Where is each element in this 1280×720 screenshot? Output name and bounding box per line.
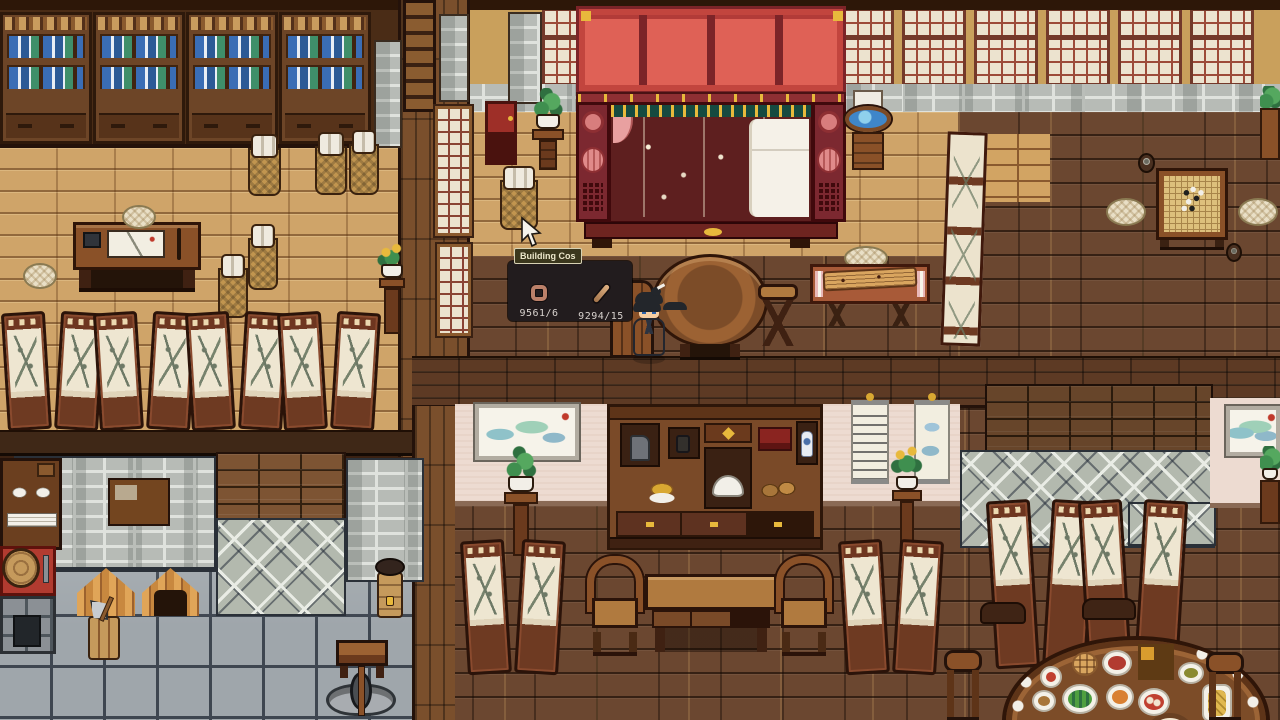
block-body [88,616,120,660]
stand-column [1260,480,1280,524]
stool-top [1206,652,1244,674]
side-table-plant[interactable] [1258,86,1280,162]
folding-screen-panel[interactable] [514,539,566,675]
stool-top [758,284,798,300]
stand-top [504,492,538,504]
horseshoe-armchair[interactable] [774,556,834,656]
calligraphy-scroll [107,230,165,258]
book-row [286,34,364,58]
floor-cushion[interactable] [122,205,156,229]
cabinet-cell [668,427,700,459]
folding-screen-panel[interactable] [330,311,381,431]
red-cabinet[interactable] [485,101,517,165]
folding-screen-row[interactable] [8,312,374,430]
lantern [581,147,605,173]
character-body [633,318,665,356]
column-lattice [819,183,839,213]
tooltip-title: Building Cos [514,248,582,264]
desk-legs [79,270,195,292]
side-table [1260,108,1280,160]
table-top [645,574,777,610]
lattice-door [435,106,472,236]
go-stones [1164,176,1220,232]
dining-chair-back[interactable] [1082,598,1136,620]
kitchen-entry-tiles [216,518,346,616]
grinder[interactable] [374,558,406,624]
stool-legs [1209,672,1241,720]
washbasin-stand[interactable] [841,90,895,172]
gold-corners [581,11,591,21]
guqin [823,267,918,292]
book-row [7,65,85,89]
book-row [7,34,85,58]
column-lattice [583,183,603,213]
bowls [7,483,57,499]
resource-stone: 9561/6 [510,285,568,322]
red-box [758,427,792,451]
resource-row: 9561/6 9294/15 [508,285,632,322]
cabinet-base [610,537,820,548]
checker-end [917,271,925,297]
lattice-window [1046,8,1110,86]
blanket [749,119,809,217]
gold-handle [704,228,722,236]
plant-stand[interactable] [528,88,568,170]
stand-top [379,278,405,288]
plant [1260,446,1280,470]
book-row [100,34,178,58]
book-row [193,65,271,89]
folding-screen-panel[interactable] [185,311,236,431]
canopy-bed[interactable] [576,6,846,250]
wheel-axle [358,666,365,716]
round-table[interactable] [652,254,768,364]
folding-stool[interactable] [758,284,798,352]
game-viewport: 9561/6 9294/15 Building Cos [0,0,1280,720]
cabinet-cell [620,423,660,467]
stool-legs [947,670,979,720]
flower-medallion [818,111,840,133]
bed-column [576,102,610,222]
folding-screen-pair[interactable] [846,540,936,674]
kitchen-window [110,480,168,524]
character-eyes [642,308,646,314]
floor-cushion[interactable] [23,263,57,289]
tooltip-panel: 9561/6 9294/15 [508,261,632,321]
table-apron [652,610,770,628]
stone-pot[interactable] [1138,153,1155,173]
scholar-rock [630,435,650,461]
stool-top [944,650,982,672]
dark-jar [676,435,690,453]
brick-column [374,40,402,148]
stone-pot[interactable] [1226,243,1242,262]
wood-stick-icon [592,284,609,303]
corridor-brick-wall [985,384,1213,456]
resource-value: 9294/15 [578,311,624,322]
folding-screen-panel[interactable] [277,311,328,431]
stand-column [384,288,400,334]
folding-screen-panel[interactable] [460,539,512,675]
plant-pot [536,114,560,129]
lattice-window [1118,8,1182,86]
bed-feet [592,239,612,248]
kitchen-wood-wall [216,452,346,520]
table-top [652,254,768,348]
guqin-table[interactable] [810,246,930,328]
knob [508,116,513,121]
horseshoe-armchair[interactable] [585,556,645,656]
plate-stack [7,513,57,527]
cabinet-crest [704,423,752,443]
bed-canopy [576,6,846,94]
x-leg [886,304,916,326]
player-character[interactable] [630,292,668,366]
cabinet-top [610,407,820,420]
folding-screen-panel[interactable] [1,311,52,431]
gold-diamond [722,427,735,440]
bread-ingots [756,473,800,505]
lattice-door [437,244,471,336]
kitchen-north-beam [0,430,424,456]
flowers [890,444,924,480]
book-row [286,65,364,89]
floor-cushion[interactable] [1106,198,1146,226]
qin-table-top [810,264,930,304]
dining-stool[interactable] [1206,652,1244,720]
bed-interior [608,102,814,224]
cabinet-drawers [616,511,814,537]
scroll-basket[interactable] [349,144,379,195]
go-board [1164,176,1220,232]
stone-block-icon [531,285,547,301]
folding-screen-panel[interactable] [838,539,890,675]
flower-pot [381,264,403,278]
stand-top [892,490,922,501]
wall-ladder [403,0,436,112]
basin-stand [852,132,884,170]
table-base [680,344,740,360]
bookshelf[interactable] [279,12,371,144]
washbasin [845,106,891,132]
flower-medallion [582,111,604,133]
x-leg [822,304,852,326]
gameroom-floor-patch [983,134,1050,202]
book-row [193,34,271,58]
display-cabinet[interactable] [607,404,823,550]
brush [177,228,181,260]
stove-base [0,596,56,654]
keyhole [386,596,394,606]
brick-column [439,14,469,102]
box [37,463,55,477]
bookshelf[interactable] [93,12,185,144]
stove-door [13,615,41,647]
mouse-cursor [519,216,543,248]
flower-stand[interactable] [886,444,928,554]
bonsai-plant [504,446,538,480]
character-hair [635,292,663,304]
dining-chair-back[interactable] [980,602,1026,624]
horn-cup [712,475,744,497]
chair-seat [781,598,827,628]
lattice-window [902,8,966,86]
bed-valance [611,105,811,117]
cabinet-cell [796,421,818,465]
chopping-block[interactable] [86,604,124,662]
long-table[interactable] [645,574,777,652]
bonsai-pot [508,476,534,492]
chair-seat [592,598,638,628]
book-row [100,65,178,89]
folding-screen-panel[interactable] [892,539,944,675]
calligraphy-scroll-hanging[interactable] [851,400,889,484]
build-tooltip: 9561/6 9294/15 Building Cos [508,248,632,322]
bed-base [584,222,838,239]
wooden-tub[interactable] [2,548,40,588]
bench-top [336,640,388,666]
lattice-window [1190,8,1254,86]
grinder-body [377,572,403,618]
flower-pot [896,476,918,490]
grinding-wheel-station[interactable] [326,672,396,718]
shelf-drawers [6,113,86,138]
table-legs [655,628,767,652]
stool-legs [760,300,796,346]
kitchen-shelf[interactable] [0,458,62,550]
gold-ingot-plate [640,477,684,505]
bookshelf[interactable] [186,12,278,144]
go-board-table[interactable] [1156,168,1228,252]
folding-screen-panel[interactable] [93,311,144,431]
ink-stone [83,232,101,248]
porcelain-vase [801,431,813,457]
resource-wood: 9294/15 [572,285,630,322]
bookshelf[interactable] [0,12,92,144]
floor-cushion[interactable] [1238,198,1278,226]
plant-pot [1262,468,1278,480]
board-frame [1156,168,1228,240]
stand-top [532,129,564,140]
wood-hollow [154,590,187,616]
plant [1260,86,1280,108]
drawer-knobs [646,522,654,527]
ladle [43,555,49,583]
scroll-basket[interactable] [248,238,278,290]
table-legs [1160,240,1224,250]
writing-desk[interactable] [73,222,201,298]
lattice-window [974,8,1038,86]
flower-stand[interactable] [1258,446,1280,526]
resource-value: 9561/6 [519,308,558,319]
grinder-wheel [375,558,405,576]
tall-folding-screen[interactable] [940,131,987,346]
lantern [817,147,841,173]
chair-legs [593,632,637,656]
folding-screen-pair[interactable] [468,540,558,674]
scroll-basket[interactable] [248,148,281,196]
cabinet-center-cell [704,447,752,509]
stand-column [539,140,557,170]
dining-stool[interactable] [944,650,982,720]
shelf-drawers [99,113,179,138]
scroll-basket[interactable] [315,146,347,195]
chair-legs [782,632,826,656]
